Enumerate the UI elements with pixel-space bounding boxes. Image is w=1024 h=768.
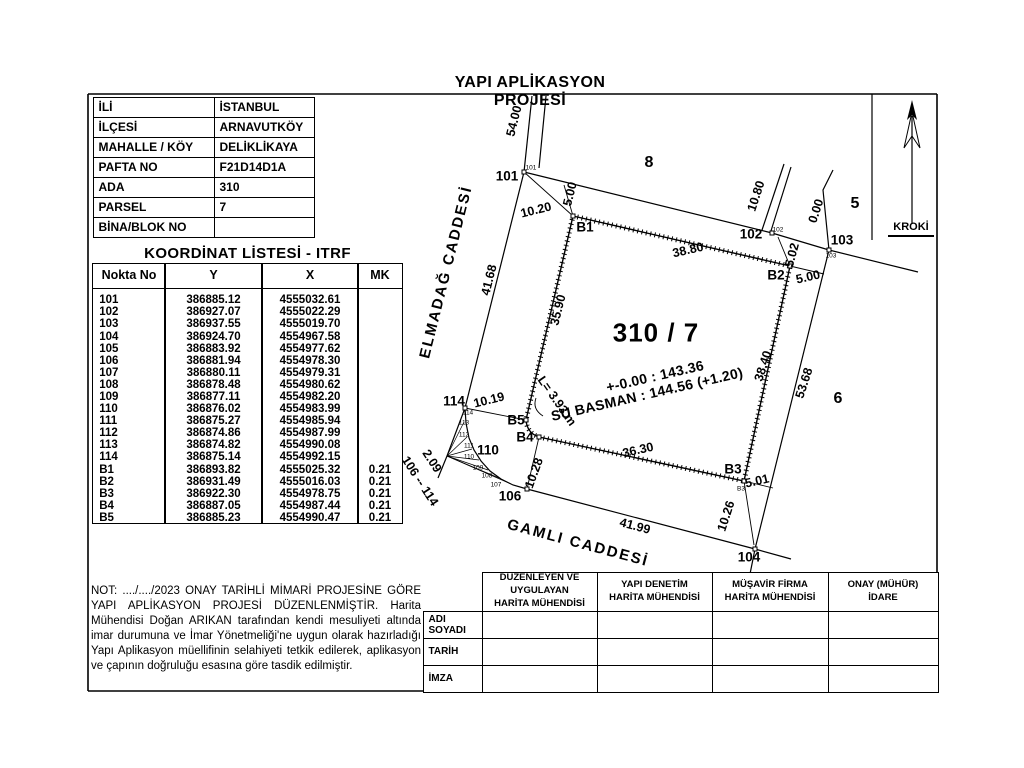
coord-cell-mk <box>358 294 402 306</box>
parcel-boundary <box>438 96 918 584</box>
coord-column-x: 4555032.614555022.294555019.704554967.58… <box>261 288 359 524</box>
coord-cell-no: 107 <box>93 367 165 379</box>
coord-cell-mk <box>358 343 402 355</box>
coord-cell-no: 103 <box>93 318 165 330</box>
coord-cell-x: 4554990.47 <box>262 512 358 524</box>
coord-cell-y: 386874.86 <box>165 427 262 439</box>
coord-cell-x: 4555032.61 <box>262 294 358 306</box>
coord-cell-no: 114 <box>93 451 165 463</box>
signature-column-header-3: ONAY (MÜHÜR) İDARE <box>828 572 939 612</box>
signature-corner-blank <box>423 572 483 612</box>
signature-column-header-2: MÜŞAVİR FİRMA HARİTA MÜHENDİSİ <box>712 572 829 612</box>
coord-header-x: X <box>261 263 359 289</box>
coord-cell-mk <box>358 379 402 391</box>
coord-cell-no: B3 <box>93 488 165 500</box>
coord-cell-y: 386893.82 <box>165 464 262 476</box>
coord-cell-mk <box>358 391 402 403</box>
note-text: NOT: ..../..../2023 ONAY TARİHLİ MİMARİ … <box>91 584 421 674</box>
coord-cell-y: 386874.82 <box>165 439 262 451</box>
coord-cell-x: 4554992.15 <box>262 451 358 463</box>
coord-table-header: Nokta No Y X MK <box>93 264 402 289</box>
coord-cell-no: 102 <box>93 306 165 318</box>
coord-cell-mk <box>358 439 402 451</box>
signature-empty-cell <box>482 611 598 639</box>
info-value: DELİKLİKAYA <box>214 137 315 158</box>
coord-cell-mk: 0.21 <box>358 488 402 500</box>
coord-cell-x: 4555025.32 <box>262 464 358 476</box>
coord-cell-y: 386927.07 <box>165 306 262 318</box>
info-value: F21D14D1A <box>214 157 315 178</box>
coord-cell-mk: 0.21 <box>358 500 402 512</box>
coord-cell-x: 4554985.94 <box>262 415 358 427</box>
info-value: 310 <box>214 177 315 198</box>
coord-cell-no: B5 <box>93 512 165 524</box>
signature-column-header-0: DÜZENLEYEN VE UYGULAYAN HARİTA MÜHENDİSİ <box>482 572 598 612</box>
coord-cell-no: 108 <box>93 379 165 391</box>
coord-cell-y: 386924.70 <box>165 331 262 343</box>
signature-empty-cell <box>482 638 598 666</box>
info-table: İLİİSTANBULİLÇESİARNAVUTKÖYMAHALLE / KÖY… <box>93 97 314 237</box>
coord-cell-y: 386878.48 <box>165 379 262 391</box>
info-label: PARSEL <box>93 197 215 218</box>
info-label: İLİ <box>93 97 215 118</box>
coord-table-body: 1011021031041051061071081091101111121131… <box>93 289 402 524</box>
coord-cell-mk: 0.21 <box>358 476 402 488</box>
info-label: ADA <box>93 177 215 198</box>
coord-cell-mk <box>358 367 402 379</box>
coord-cell-x: 4554978.75 <box>262 488 358 500</box>
coord-cell-no: 106 <box>93 355 165 367</box>
signature-empty-cell <box>597 665 713 693</box>
coord-cell-mk <box>358 318 402 330</box>
coord-cell-y: 386931.49 <box>165 476 262 488</box>
coord-cell-y: 386883.92 <box>165 343 262 355</box>
coord-cell-x: 4554979.31 <box>262 367 358 379</box>
north-arrow-icon <box>904 100 920 224</box>
coord-cell-mk <box>358 306 402 318</box>
page: YAPI APLİKASYON PROJESİ İLİİSTANBULİLÇES… <box>0 0 1024 768</box>
signature-empty-cell <box>828 611 939 639</box>
signature-empty-cell <box>828 638 939 666</box>
signature-row-label-0: ADI SOYADI <box>423 611 483 639</box>
coord-cell-no: B2 <box>93 476 165 488</box>
signature-empty-cell <box>712 665 829 693</box>
coord-cell-x: 4554967.58 <box>262 331 358 343</box>
coord-cell-no: 105 <box>93 343 165 355</box>
coord-cell-mk <box>358 451 402 463</box>
coord-cell-y: 386885.12 <box>165 294 262 306</box>
coord-cell-x: 4554990.08 <box>262 439 358 451</box>
signature-column-header-1: YAPI DENETİM HARİTA MÜHENDİSİ <box>597 572 713 612</box>
coord-cell-y: 386885.23 <box>165 512 262 524</box>
coord-cell-mk <box>358 415 402 427</box>
info-value: İSTANBUL <box>214 97 315 118</box>
building-hatch <box>526 216 790 481</box>
coord-cell-x: 4554980.62 <box>262 379 358 391</box>
coord-cell-x: 4554987.44 <box>262 500 358 512</box>
info-value <box>214 217 315 238</box>
signature-row-label-1: TARİH <box>423 638 483 666</box>
coord-cell-x: 4555016.03 <box>262 476 358 488</box>
coord-cell-y: 386881.94 <box>165 355 262 367</box>
coord-cell-y: 386877.11 <box>165 391 262 403</box>
coord-cell-y: 386887.05 <box>165 500 262 512</box>
coord-cell-mk <box>358 403 402 415</box>
coord-cell-no: B4 <box>93 500 165 512</box>
coord-column-no: 1011021031041051061071081091101111121131… <box>92 288 166 524</box>
point-markers <box>463 170 831 551</box>
coord-cell-y: 386937.55 <box>165 318 262 330</box>
coord-cell-x: 4554987.99 <box>262 427 358 439</box>
info-label: İLÇESİ <box>93 117 215 138</box>
signature-table: DÜZENLEYEN VE UYGULAYAN HARİTA MÜHENDİSİ… <box>423 572 938 692</box>
coord-cell-mk <box>358 355 402 367</box>
coord-cell-no: 111 <box>93 415 165 427</box>
signature-empty-cell <box>482 665 598 693</box>
coord-cell-no: 113 <box>93 439 165 451</box>
coord-cell-mk: 0.21 <box>358 464 402 476</box>
signature-empty-cell <box>597 611 713 639</box>
coord-cell-mk <box>358 331 402 343</box>
coord-cell-y: 386875.14 <box>165 451 262 463</box>
coord-cell-y: 386876.02 <box>165 403 262 415</box>
coord-cell-no: 101 <box>93 294 165 306</box>
coord-header-y: Y <box>164 263 263 289</box>
coord-cell-no: 104 <box>93 331 165 343</box>
signature-empty-cell <box>712 611 829 639</box>
coord-cell-x: 4555019.70 <box>262 318 358 330</box>
signature-empty-cell <box>712 638 829 666</box>
coord-header-mk: MK <box>357 263 403 289</box>
page-title: YAPI APLİKASYON PROJESİ <box>420 74 640 110</box>
coord-cell-no: B1 <box>93 464 165 476</box>
coord-cell-y: 386922.30 <box>165 488 262 500</box>
kroki-label: KROKİ <box>888 221 934 233</box>
coord-cell-x: 4554982.20 <box>262 391 358 403</box>
coord-cell-y: 386875.27 <box>165 415 262 427</box>
info-label: BİNA/BLOK NO <box>93 217 215 238</box>
coord-cell-x: 4555022.29 <box>262 306 358 318</box>
coord-cell-mk: 0.21 <box>358 512 402 524</box>
coord-cell-no: 109 <box>93 391 165 403</box>
coord-cell-no: 110 <box>93 403 165 415</box>
info-value: 7 <box>214 197 315 218</box>
info-label: MAHALLE / KÖY <box>93 137 215 158</box>
info-value: ARNAVUTKÖY <box>214 117 315 138</box>
info-label: PAFTA NO <box>93 157 215 178</box>
coord-cell-x: 4554977.62 <box>262 343 358 355</box>
coord-column-y: 386885.12386927.07386937.55386924.703868… <box>164 288 263 524</box>
signature-empty-cell <box>597 638 713 666</box>
coord-cell-y: 386880.11 <box>165 367 262 379</box>
signature-row-label-2: İMZA <box>423 665 483 693</box>
coord-cell-mk <box>358 427 402 439</box>
coord-cell-no: 112 <box>93 427 165 439</box>
signature-empty-cell <box>828 665 939 693</box>
coord-cell-x: 4554978.30 <box>262 355 358 367</box>
coord-cell-x: 4554983.99 <box>262 403 358 415</box>
coord-table-title: KOORDİNAT LİSTESİ - ITRF <box>93 245 402 262</box>
coord-header-nokta-no: Nokta No <box>92 263 166 289</box>
coord-column-mk: 0.210.210.210.210.21 <box>357 288 403 524</box>
